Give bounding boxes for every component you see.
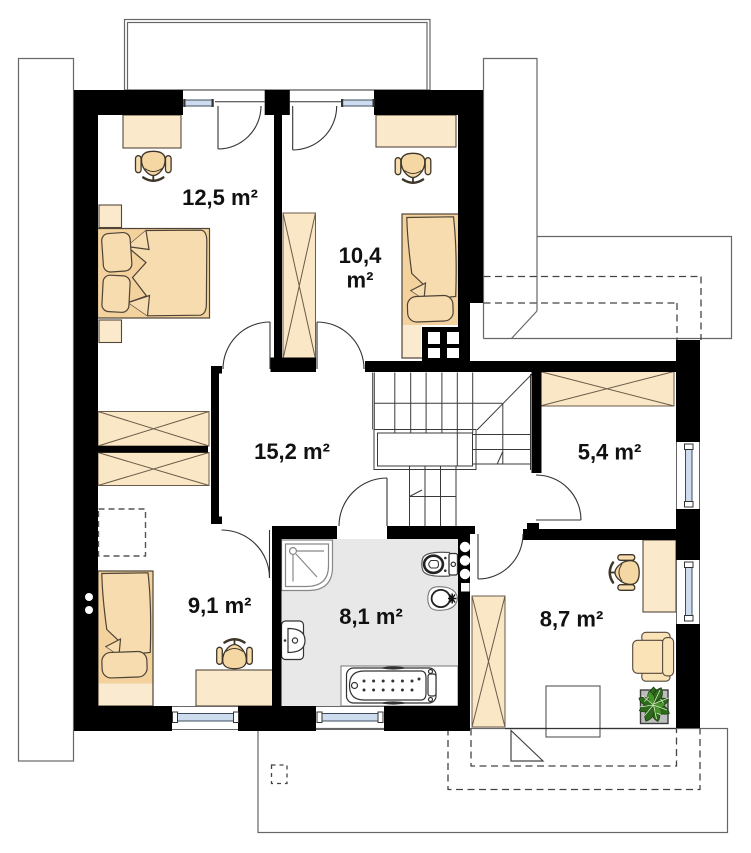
svg-text:12,5 m²: 12,5 m² — [182, 185, 258, 210]
svg-text:10,4: 10,4 — [339, 243, 383, 268]
svg-text:9,1 m²: 9,1 m² — [188, 593, 252, 618]
svg-text:8,1 m²: 8,1 m² — [339, 604, 403, 629]
svg-text:15,2 m²: 15,2 m² — [254, 439, 330, 464]
svg-text:8,7 m²: 8,7 m² — [540, 607, 604, 632]
svg-text:m²: m² — [347, 268, 374, 293]
svg-text:5,4 m²: 5,4 m² — [578, 440, 642, 465]
